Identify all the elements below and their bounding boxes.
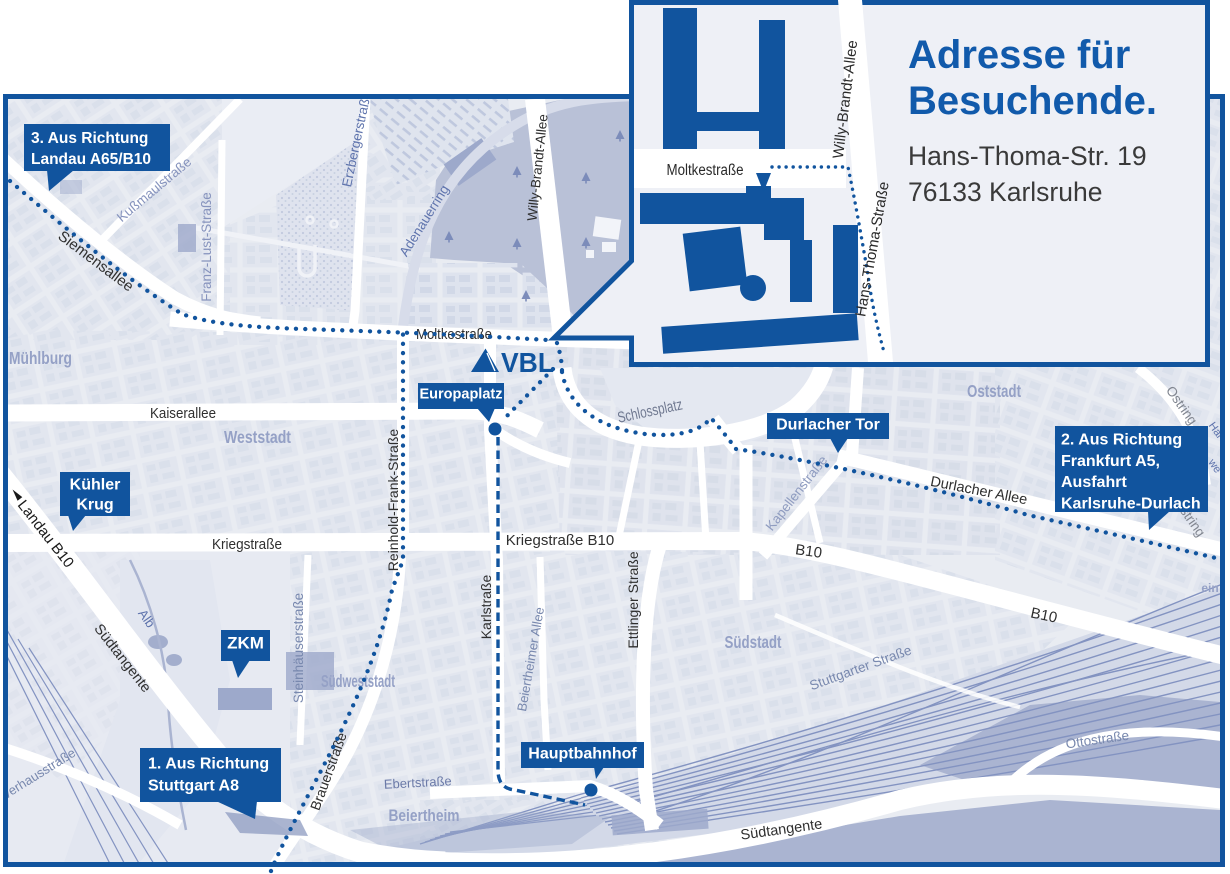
- svg-text:Durlacher Tor: Durlacher Tor: [776, 417, 880, 434]
- svg-text:3. Aus Richtung: 3. Aus Richtung: [31, 130, 148, 147]
- svg-text:Besuchende.: Besuchende.: [908, 79, 1157, 123]
- svg-text:Kaiserallee: Kaiserallee: [150, 405, 216, 422]
- svg-text:Kriegstraße: Kriegstraße: [212, 536, 282, 553]
- svg-text:Ettlinger Straße: Ettlinger Straße: [625, 551, 641, 648]
- svg-text:Ausfahrt: Ausfahrt: [1061, 474, 1127, 491]
- svg-text:Kriegstraße B10: Kriegstraße B10: [506, 532, 614, 549]
- svg-text:Frankfurt A5,: Frankfurt A5,: [1061, 453, 1160, 470]
- svg-text:Karlsruhe-Durlach: Karlsruhe-Durlach: [1061, 495, 1201, 512]
- svg-text:Europaplatz: Europaplatz: [420, 386, 503, 402]
- svg-text:1. Aus Richtung: 1. Aus Richtung: [148, 756, 269, 773]
- svg-text:Beiertheim: Beiertheim: [389, 807, 460, 825]
- svg-text:Hauptbahnhof: Hauptbahnhof: [528, 746, 637, 763]
- svg-text:Südweststadt: Südweststadt: [321, 671, 395, 691]
- svg-text:2. Aus Richtung: 2. Aus Richtung: [1061, 432, 1182, 449]
- svg-text:Südstadt: Südstadt: [725, 632, 782, 652]
- svg-text:Stuttgart A8: Stuttgart A8: [148, 778, 239, 795]
- svg-text:Steinhäuserstraße: Steinhäuserstraße: [291, 593, 306, 703]
- svg-text:ein: ein: [1201, 581, 1218, 595]
- svg-text:Krug: Krug: [76, 497, 113, 514]
- svg-text:VBL: VBL: [501, 347, 554, 378]
- svg-text:Hans-Thoma-Str. 19: Hans-Thoma-Str. 19: [908, 141, 1147, 171]
- svg-text:Mühlburg: Mühlburg: [9, 348, 72, 368]
- svg-text:Landau A65/B10: Landau A65/B10: [31, 151, 151, 168]
- svg-text:Adresse für: Adresse für: [908, 33, 1130, 77]
- svg-text:ZKM: ZKM: [227, 633, 264, 652]
- svg-text:Karlstraße: Karlstraße: [478, 575, 494, 640]
- svg-text:Weststadt: Weststadt: [224, 427, 291, 447]
- svg-text:Kühler: Kühler: [70, 477, 121, 494]
- svg-text:Oststadt: Oststadt: [967, 381, 1021, 401]
- svg-text:Reinhold-Frank-Straße: Reinhold-Frank-Straße: [385, 429, 401, 572]
- svg-text:76133 Karlsruhe: 76133 Karlsruhe: [908, 177, 1102, 207]
- svg-text:Franz-Lust-Straße: Franz-Lust-Straße: [199, 192, 214, 302]
- svg-text:Moltkestraße: Moltkestraße: [667, 162, 744, 179]
